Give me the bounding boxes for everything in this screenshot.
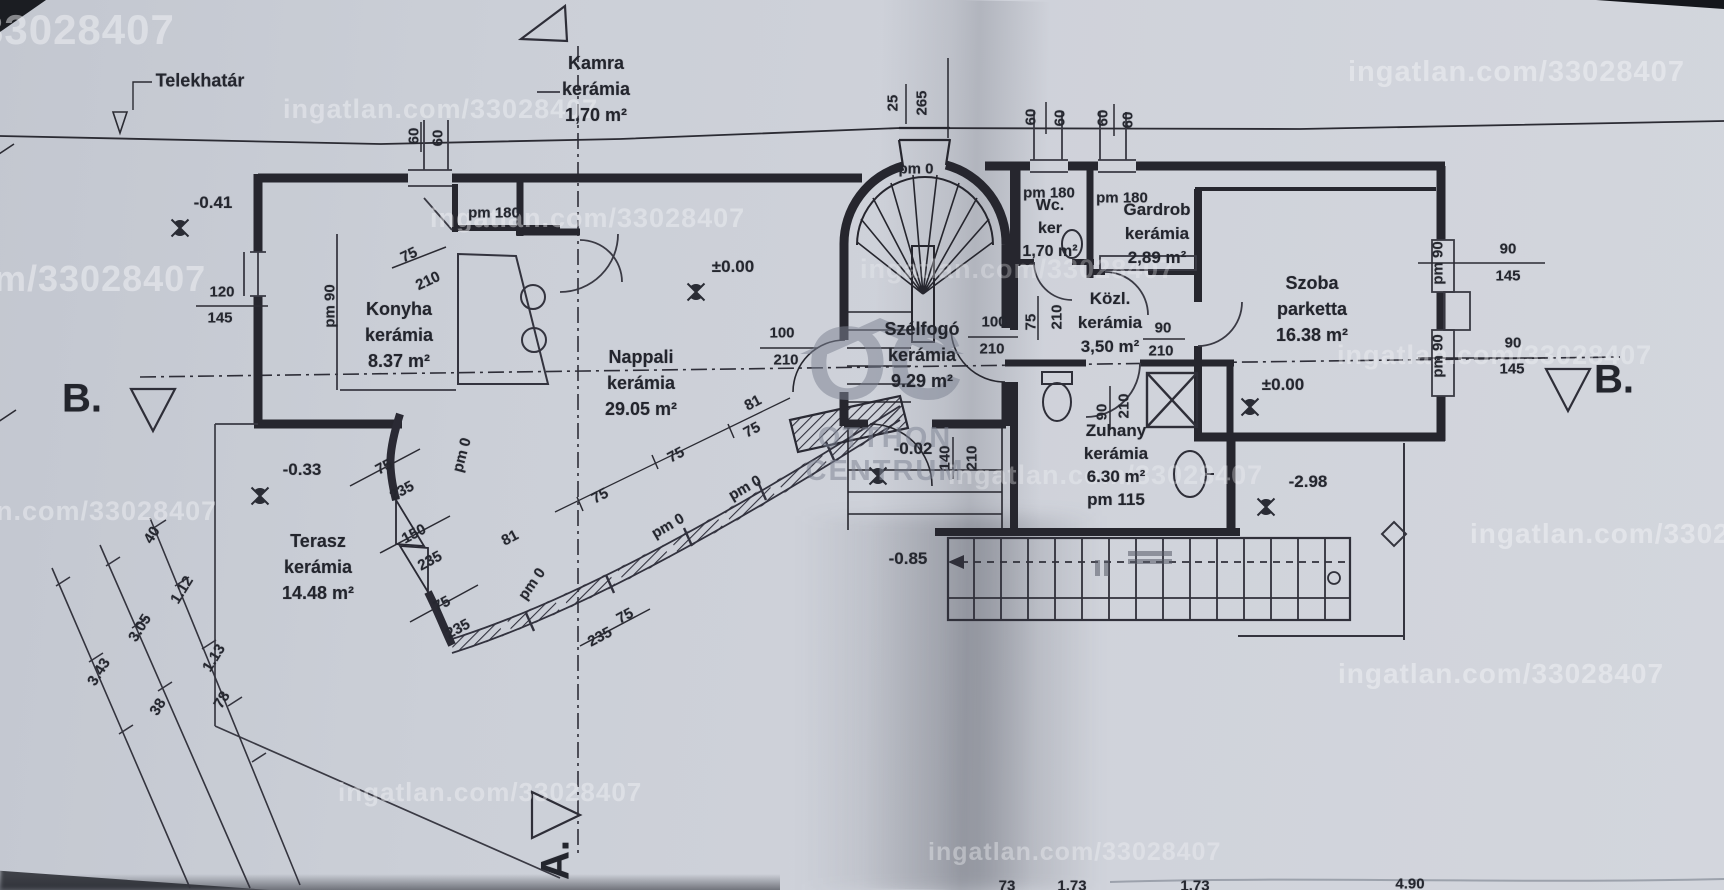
room-label-line: kerámia xyxy=(1123,222,1190,246)
dimension-label: 210 xyxy=(1116,393,1133,418)
room-label-line: kerámia xyxy=(365,322,433,348)
dimension-label: 140 xyxy=(937,445,954,470)
elevation-label: ±0.00 xyxy=(1262,375,1304,395)
external-stairs xyxy=(948,538,1350,620)
room-label-line: 1,70 m² xyxy=(1022,240,1077,263)
room-label-line: Szoba xyxy=(1276,270,1348,296)
dimension-label: 210 xyxy=(964,445,981,470)
room-label-line: 2,89 m² xyxy=(1123,246,1190,270)
elevation-label: -0.33 xyxy=(283,460,322,480)
elevation-label: -2.98 xyxy=(1289,472,1328,492)
room-label: Gardrobkerámia2,89 m² xyxy=(1123,198,1190,270)
dimension-label: 75 xyxy=(1023,314,1040,331)
dimension-label: pm 0 xyxy=(898,161,933,178)
room-label-line: kerámia xyxy=(885,342,960,368)
room-label: Kamrakerámia1,70 m² xyxy=(562,50,630,128)
dimension-label: 25 xyxy=(885,95,902,112)
watermark-text: ingatlan.com/33028407 xyxy=(1337,340,1652,371)
dimension-label: 210 xyxy=(1148,343,1173,360)
dimension-label: 145 xyxy=(1499,361,1524,378)
toilet-icon xyxy=(1042,372,1072,421)
dimension-label: 60 xyxy=(1052,110,1069,127)
dimension-label: pm 180 xyxy=(1023,185,1075,202)
room-label-line: 29.05 m² xyxy=(605,396,677,422)
room-label-line: ker xyxy=(1022,217,1077,240)
room-label-line: kerámia xyxy=(562,76,630,102)
dimension-label: 100 xyxy=(769,325,794,342)
room-label: Közl.kerámia3,50 m² xyxy=(1078,287,1142,359)
dimension-label: 60 xyxy=(430,130,447,147)
room-label-line: 6.30 m² xyxy=(1084,465,1148,488)
dimension-label: 60 xyxy=(1120,112,1137,129)
room-label: Konyhakerámia8.37 m² xyxy=(365,296,433,374)
room-label-line: 14.48 m² xyxy=(282,580,354,606)
room-label-line: Kamra xyxy=(562,50,630,76)
watermark-text: ingatlan.com/33028407 xyxy=(338,777,642,808)
room-label-line: 16.38 m² xyxy=(1276,322,1348,348)
room-label-line: parketta xyxy=(1276,296,1348,322)
section-line-A xyxy=(521,6,580,858)
dimension-label: 60 xyxy=(406,128,423,145)
room-label-line: Szélfogó xyxy=(885,316,960,342)
watermark-text: ingatlan.com/33028407 xyxy=(1338,658,1664,690)
dimension-label: 210 xyxy=(773,352,798,369)
boundary-label: Telekhatár xyxy=(156,71,245,92)
room-label-line: kerámia xyxy=(1084,442,1148,465)
logo-line1: OTTHON xyxy=(782,422,988,455)
room-label-line: 3,50 m² xyxy=(1078,335,1142,359)
watermark-text: ingatlan.com/33028407 xyxy=(1470,518,1724,550)
room-label: Zuhanykerámia6.30 m²pm 115 xyxy=(1084,419,1148,511)
room-label-line: Nappali xyxy=(605,344,677,370)
dimension-label: 4.90 xyxy=(1395,876,1424,890)
dimension-label: 90 xyxy=(1505,335,1522,352)
dimension-label: 100 xyxy=(981,314,1006,331)
kitchen-counter xyxy=(458,254,548,384)
dimension-label: pm 180 xyxy=(468,205,520,222)
room-label: Szobaparketta16.38 m² xyxy=(1276,270,1348,348)
dimension-label: 210 xyxy=(1049,304,1066,329)
room-label-line: 8.37 m² xyxy=(365,348,433,374)
room-label: Nappalikerámia29.05 m² xyxy=(605,344,677,422)
section-letter-a-bottom: A. xyxy=(534,840,579,880)
elevation-label: ±0.00 xyxy=(712,257,754,277)
dimension-label: 60 xyxy=(1023,109,1040,126)
room-label: Wc.ker1,70 m² xyxy=(1022,194,1077,263)
room-label-line: Közl. xyxy=(1078,287,1142,311)
dimension-label: 145 xyxy=(207,310,232,327)
dimension-label: 265 xyxy=(914,90,931,115)
room-label: Teraszkerámia14.48 m² xyxy=(282,528,354,606)
dimension-label: 90 xyxy=(1155,320,1172,337)
dimension-label: 90 xyxy=(1500,241,1517,258)
watermark-text: 33028407 xyxy=(0,6,175,54)
dimension-label: 120 xyxy=(209,284,234,301)
room-label-line: Zuhany xyxy=(1084,419,1148,442)
dimension-label: 1.73 xyxy=(1057,878,1086,890)
dimension-label: pm 180 xyxy=(1096,190,1148,207)
watermark-text: ingatlan.com/33028407 xyxy=(283,94,598,125)
watermark-text: n.com/33028407 xyxy=(0,496,217,527)
watermark-text: ingatlan.com/33028407 xyxy=(1348,56,1685,89)
room-label-line: pm 115 xyxy=(1084,488,1148,511)
room-label-line: 1,70 m² xyxy=(562,102,630,128)
dimension-label: 1.73 xyxy=(1180,878,1209,890)
dimension-label: 210 xyxy=(979,341,1004,358)
dimension-label: pm 90 xyxy=(322,284,339,327)
room-label: Szélfogókerámia9.29 m² xyxy=(885,316,960,394)
floorplan-page: Telekhatár B. B. A. OC OTTHON CENTRUM 33… xyxy=(0,0,1724,890)
room-label-line: 9.29 m² xyxy=(885,368,960,394)
watermark-text: m/33028407 xyxy=(0,258,206,300)
dimension-label: pm 90 xyxy=(1430,241,1447,284)
dimension-label: pm 90 xyxy=(1430,334,1447,377)
survey-dimension-lines xyxy=(52,518,300,888)
elevation-label: -0.41 xyxy=(194,193,233,213)
shower-icon xyxy=(1147,373,1197,427)
dimension-label: 90 xyxy=(1094,404,1111,421)
room-label-line: Terasz xyxy=(282,528,354,554)
room-label-line: kerámia xyxy=(282,554,354,580)
watermark-text: ingatlan.com/33028407 xyxy=(928,838,1221,867)
section-letter-b-left: B. xyxy=(62,377,102,422)
dimension-label: 73 xyxy=(999,878,1016,890)
room-label-line: kerámia xyxy=(605,370,677,396)
elevation-label: -0.02 xyxy=(894,439,933,459)
elevation-label: -0.85 xyxy=(889,549,928,569)
room-label-line: kerámia xyxy=(1078,311,1142,335)
dimension-label: 145 xyxy=(1495,268,1520,285)
room-label-line: Konyha xyxy=(365,296,433,322)
dimension-label: 60 xyxy=(1095,110,1112,127)
